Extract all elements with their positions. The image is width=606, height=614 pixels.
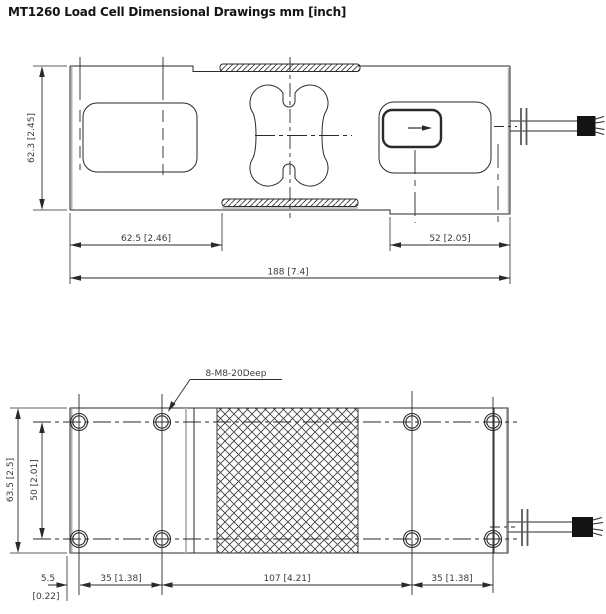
cable-end-block (572, 517, 593, 537)
cable-wires (596, 117, 605, 135)
dim-hole-pitch-left: 35 [1.38] (100, 574, 141, 584)
dim-edge-offset-inch: [0.22] (32, 592, 59, 602)
dim-hole-row-spacing: 50 [2.01] (30, 459, 40, 500)
gland-arrow-head (422, 125, 432, 130)
dim-overall-length: 188 [7.4] (267, 268, 308, 278)
body-top-edge (70, 66, 225, 72)
dim-left-section: 62.5 [2.46] (121, 234, 171, 244)
thread-callout-label: 8-M8-20Deep (206, 369, 267, 379)
dim-body-height: 62.3 [2.45] (27, 113, 37, 163)
dim-hole-pitch-center: 107 [4.21] (263, 574, 310, 584)
side-view-dimensions: 62.3 [2.45] 62.5 [2.46] 52 [2.05] 188 [7… (27, 113, 471, 277)
dim-right-section: 52 [2.05] (429, 234, 470, 244)
cable-end-block (577, 116, 596, 136)
dim-edge-offset-mm: 5.5 (41, 574, 55, 584)
plan-view-drawing (10, 380, 603, 602)
dim-hole-pitch-right: 35 [1.38] (431, 574, 472, 584)
drawing-sheet: MT1260 Load Cell Dimensional Drawings mm… (0, 0, 606, 614)
side-view-drawing (33, 57, 605, 284)
dimensional-drawing: 62.3 [2.45] 62.5 [2.46] 52 [2.05] 188 [7… (0, 0, 606, 614)
left-pocket-cutout (83, 103, 197, 172)
dim-plate-width: 63.5 [2.5] (6, 458, 16, 502)
cable-wires (593, 518, 603, 536)
right-pocket-cutout (379, 102, 491, 173)
center-hatch-block (217, 408, 358, 553)
